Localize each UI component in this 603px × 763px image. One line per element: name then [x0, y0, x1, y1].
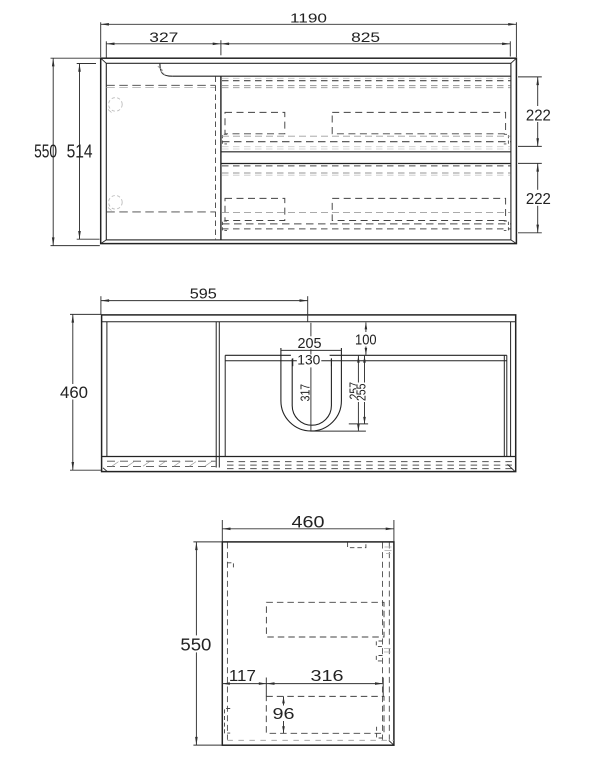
- svg-text:825: 825: [351, 30, 380, 45]
- svg-text:460: 460: [292, 512, 325, 531]
- svg-text:222: 222: [526, 191, 551, 208]
- svg-text:317: 317: [298, 384, 313, 402]
- svg-text:460: 460: [60, 384, 88, 402]
- svg-text:316: 316: [311, 668, 344, 685]
- svg-text:130: 130: [297, 352, 320, 368]
- svg-text:222: 222: [526, 107, 551, 124]
- svg-text:514: 514: [67, 142, 93, 162]
- svg-text:100: 100: [355, 332, 377, 349]
- svg-text:96: 96: [273, 706, 295, 723]
- svg-text:255: 255: [353, 384, 368, 402]
- svg-text:550: 550: [34, 142, 57, 162]
- svg-text:117: 117: [229, 668, 256, 685]
- svg-text:595: 595: [190, 285, 217, 302]
- svg-text:550: 550: [180, 634, 211, 654]
- svg-text:1190: 1190: [290, 11, 327, 26]
- svg-text:327: 327: [149, 30, 178, 45]
- svg-text:205: 205: [298, 335, 322, 352]
